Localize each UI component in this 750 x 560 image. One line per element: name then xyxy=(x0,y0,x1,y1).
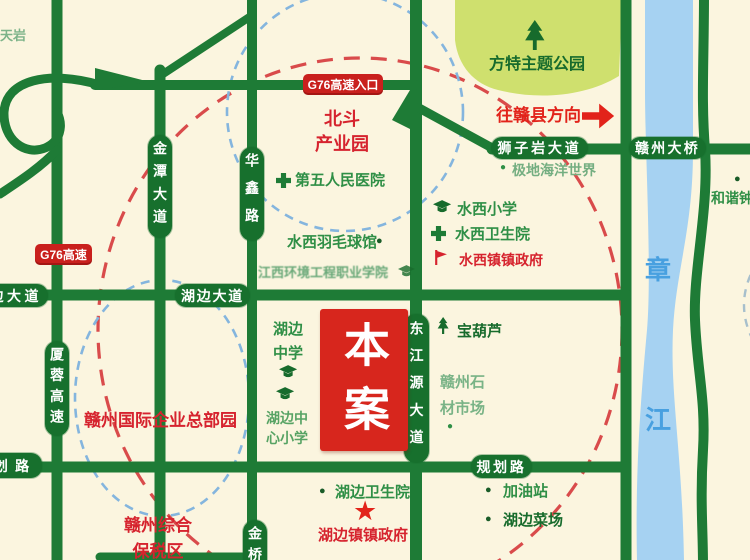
school-icon xyxy=(433,200,451,214)
star-icon: ★ xyxy=(353,498,377,525)
shiziyan-avenue-badge: 狮子岩大道 xyxy=(491,137,588,159)
jintan-avenue-badge: 金潭大道 xyxy=(148,135,172,238)
to-ganxian-direction-label: 往赣县方向 xyxy=(496,106,591,126)
g76-entrance-badge: G76高速入口 xyxy=(303,74,383,95)
shuixi-primary-school-label: 水西小学 xyxy=(457,201,527,218)
tongtianyan-label: 通天岩 xyxy=(0,29,37,44)
gray-radius-circle-east xyxy=(744,210,750,400)
jiangxi-environmental-college-label: 江西环境工程职业学院 xyxy=(258,266,398,281)
gas-station-label: 加油站 xyxy=(503,483,558,500)
dot-icon: ● xyxy=(485,514,492,525)
xiarong-expressway-badge: 厦蓉高速 xyxy=(45,341,69,436)
dot-icon: ● xyxy=(734,174,741,185)
jiang-river-char-label: 江 xyxy=(645,406,675,436)
fifth-peoples-hospital-label: 第五人民医院 xyxy=(295,172,395,189)
dot-icon: ● xyxy=(485,485,492,496)
beidou-industrial-park-label: 北斗 产业园 xyxy=(303,107,381,157)
arrow-icon xyxy=(582,102,614,130)
dot-icon: ● xyxy=(376,236,383,247)
dot-icon: ● xyxy=(500,163,506,173)
baohulu-label: 宝葫芦 xyxy=(457,323,507,340)
planning-road-badge: 规划路 xyxy=(471,455,532,478)
hubian-middle-school-label: 湖边 中学 xyxy=(270,318,306,366)
site-marker: 本案 xyxy=(320,309,408,451)
hq-enterprise-park-label: 赣州国际企业总部园 xyxy=(84,411,249,431)
fantawild-theme-park-label: 方特主题公园 xyxy=(489,56,599,74)
jinqiao-road-badge: 金桥路 xyxy=(243,520,267,560)
tree-icon xyxy=(437,317,449,334)
shuixi-health-center-label: 水西卫生院 xyxy=(455,226,540,243)
school-icon xyxy=(279,365,297,379)
hubian-health-center-label: 湖边卫生院 xyxy=(335,484,420,501)
polar-ocean-world-label: 极地海洋世界 xyxy=(512,162,607,178)
huaxin-road-badge: 华鑫路 xyxy=(240,147,264,241)
hubian-town-government-label: 湖边镇镇政府 xyxy=(318,527,418,544)
harmony-clock-tower-label: 和谐钟 xyxy=(711,190,750,206)
planning-road-west-badge: 规划路 xyxy=(0,453,42,478)
ganzhou-stone-market-label: 赣州石 材市场 xyxy=(440,370,490,421)
hospital-cross-icon xyxy=(276,173,291,188)
hubian-avenue-badge: 湖边大道 xyxy=(175,284,250,307)
location-map: 本案 金潭大道华鑫路厦蓉高速东江源大道金桥路湖边大道湖边大道狮子岩大道赣州大桥规… xyxy=(0,0,750,560)
shuixi-town-government-label: 水西镇镇政府 xyxy=(459,252,554,268)
shuixi-badminton-hall-label: 水西羽毛球馆 xyxy=(287,234,382,251)
hospital-cross-icon xyxy=(431,226,446,241)
school-icon xyxy=(276,387,294,401)
dot-icon: ● xyxy=(319,486,326,497)
school-icon xyxy=(398,265,415,278)
hubian-central-primary-label: 湖边中 心小学 xyxy=(266,409,314,448)
hubian-food-market-label: 湖边菜场 xyxy=(503,512,573,529)
tree-icon xyxy=(524,20,546,50)
ganzhou-bridge-badge: 赣州大桥 xyxy=(629,137,706,159)
hubian-avenue-west-badge: 湖边大道 xyxy=(0,284,48,307)
dot-icon: ● xyxy=(447,422,453,432)
flag-icon xyxy=(433,250,448,265)
bonded-zone-label: 赣州综合 保税区 xyxy=(118,513,198,560)
g76-expressway-badge: G76高速 xyxy=(35,244,92,265)
zhang-river-char-label: 章 xyxy=(645,256,675,286)
